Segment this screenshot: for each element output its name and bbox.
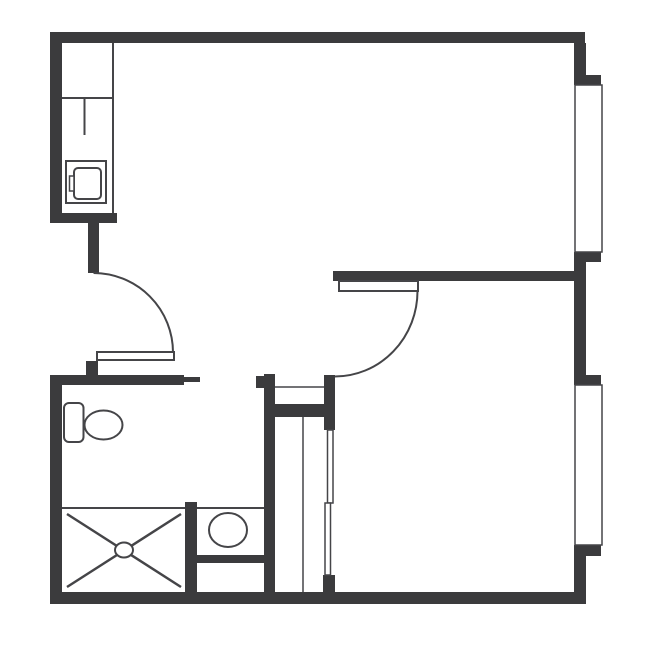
- window-1-bottom-cap: [574, 252, 601, 262]
- window-2-bottom-cap: [574, 545, 601, 556]
- kitchen-appliance-handle: [70, 176, 75, 191]
- closet-bottom-stub: [323, 575, 335, 592]
- closet-middle-wall: [264, 404, 335, 417]
- entry-door-stub-wall: [88, 223, 99, 273]
- toilet-tank: [64, 403, 84, 442]
- bathroom-top-wall: [50, 375, 184, 385]
- closet-slider-panel-2: [325, 503, 331, 575]
- floor-plan: [0, 0, 650, 650]
- closet-slider-panel-1: [328, 430, 334, 503]
- bathroom-door-jamb: [184, 377, 200, 382]
- right-wall-upper: [574, 43, 586, 75]
- closet-right-wall: [324, 375, 335, 430]
- vanity-front-wall: [197, 555, 264, 563]
- bottom-wall: [50, 592, 586, 604]
- bedroom-door-leaf: [339, 281, 418, 291]
- bedroom-dividing-wall: [333, 271, 586, 281]
- right-wall-middle: [574, 262, 586, 375]
- left-wall-lower: [50, 375, 62, 604]
- closet-left-nub: [256, 376, 264, 388]
- entry-door-leaf: [97, 352, 174, 360]
- window-2-frame: [575, 385, 602, 545]
- kitchen-appliance-door: [74, 168, 101, 199]
- entry-door-swing-arc: [94, 273, 174, 353]
- kitchen-end-wall: [50, 213, 117, 223]
- top-wall: [50, 32, 585, 43]
- window-1-top-cap: [574, 75, 601, 85]
- window-2-top-cap: [574, 375, 601, 385]
- entry-door-nub-wall: [86, 361, 98, 376]
- window-1-frame: [575, 85, 602, 252]
- left-wall-upper: [50, 43, 62, 223]
- shower-drain: [115, 543, 133, 558]
- floor-plan-svg: [0, 0, 650, 650]
- shower-partition-wall: [185, 502, 197, 592]
- vanity-basin: [209, 513, 247, 547]
- toilet-bowl: [85, 411, 123, 440]
- right-wall-lower: [574, 556, 586, 604]
- bedroom-door-swing-arc: [335, 291, 418, 377]
